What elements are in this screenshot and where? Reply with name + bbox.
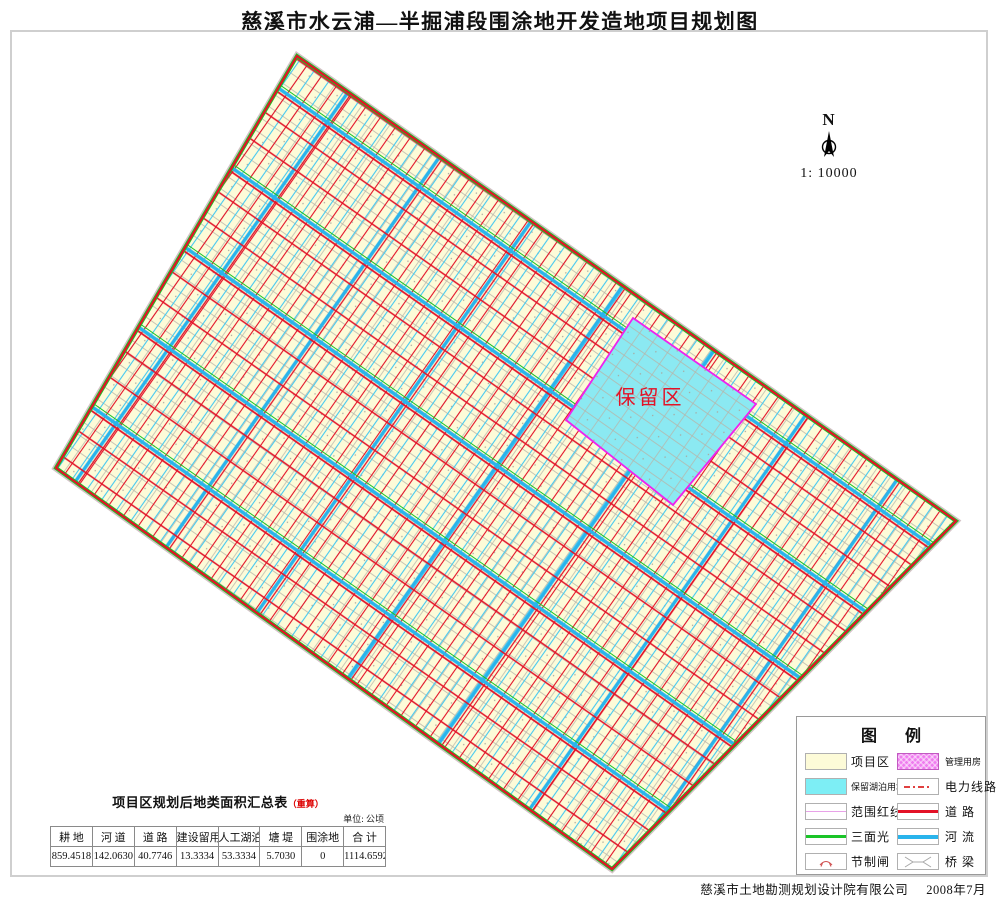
table-value-cell: 1114.6592	[344, 847, 386, 867]
company-name: 慈溪市土地勘测规划设计院有限公司	[700, 883, 908, 897]
road-line-symbol	[897, 803, 939, 820]
reserved-lake-swatch	[805, 778, 847, 795]
table-value-cell: 13.3334	[176, 847, 218, 867]
area-table-note: （重算）	[288, 799, 324, 809]
legend-label: 河 流	[945, 828, 997, 845]
legend-label: 三面光	[851, 828, 897, 845]
legend-label: 桥 梁	[945, 853, 997, 870]
legend-grid: 项目区 管理用房 保留湖泊用地 电力线路 范围红线 道 路 三面光 河 流 节制…	[797, 746, 985, 874]
table-value-cell: 5.7030	[260, 847, 302, 867]
table-value-cell: 0	[302, 847, 344, 867]
river-line-symbol	[897, 828, 939, 845]
area-table: 耕 地 河 道 道 路 建设留用地 人工湖泊 塘 堤 围涂地 合 计 859.4…	[50, 826, 386, 867]
table-header-cell: 河 道	[92, 827, 134, 847]
table-header-cell: 耕 地	[51, 827, 93, 847]
table-header-row: 耕 地 河 道 道 路 建设留用地 人工湖泊 塘 堤 围涂地 合 计	[51, 827, 386, 847]
legend-label: 电力线路	[945, 778, 997, 795]
table-value-cell: 53.3334	[218, 847, 260, 867]
legend-label: 项目区	[851, 753, 897, 770]
legend-label: 保留湖泊用地	[851, 780, 897, 793]
drawing-date: 2008年7月	[926, 883, 986, 897]
project-area-swatch	[805, 753, 847, 770]
power-line-icon	[897, 778, 939, 795]
drawing-page: 慈溪市水云浦—半掘浦段围涂地开发造地项目规划图	[0, 0, 1000, 902]
table-value-cell: 40.7746	[134, 847, 176, 867]
management-housing-swatch	[897, 753, 939, 770]
table-header-cell: 人工湖泊	[218, 827, 260, 847]
area-table-unit: 单位: 公顷	[50, 812, 384, 825]
control-gate-icon	[805, 853, 847, 870]
bridge-icon	[897, 853, 939, 870]
area-summary: 项目区规划后地类面积汇总表（重算） 单位: 公顷 耕 地 河 道 道 路 建设留…	[50, 792, 386, 867]
table-header-cell: 道 路	[134, 827, 176, 847]
table-header-cell: 围涂地	[302, 827, 344, 847]
north-label: N	[794, 110, 864, 130]
reserved-area-label: 保留区	[616, 386, 685, 409]
north-indicator: N 1: 10000	[794, 110, 864, 182]
area-table-title: 项目区规划后地类面积汇总表（重算）	[50, 792, 386, 811]
table-value-cell: 142.0630	[92, 847, 134, 867]
north-arrow-icon	[814, 130, 844, 164]
table-value-row: 859.4518 142.0630 40.7746 13.3334 53.333…	[51, 847, 386, 867]
table-header-cell: 塘 堤	[260, 827, 302, 847]
legend-label: 节制闸	[851, 853, 897, 870]
legend-label: 范围红线	[851, 803, 897, 820]
legend-box: 图 例 项目区 管理用房 保留湖泊用地 电力线路 范围红线 道 路 三面光 河 …	[796, 716, 986, 875]
legend-label: 管理用房	[945, 755, 997, 768]
legend-title: 图 例	[797, 722, 985, 746]
table-header-cell: 建设留用地	[176, 827, 218, 847]
lined-channel-symbol	[805, 828, 847, 845]
table-header-cell: 合 计	[344, 827, 386, 847]
footer-credit: 慈溪市土地勘测规划设计院有限公司2008年7月	[700, 879, 986, 898]
boundary-redline-symbol	[805, 803, 847, 820]
table-value-cell: 859.4518	[51, 847, 93, 867]
legend-label: 道 路	[945, 803, 997, 820]
scale-label: 1: 10000	[794, 166, 864, 182]
